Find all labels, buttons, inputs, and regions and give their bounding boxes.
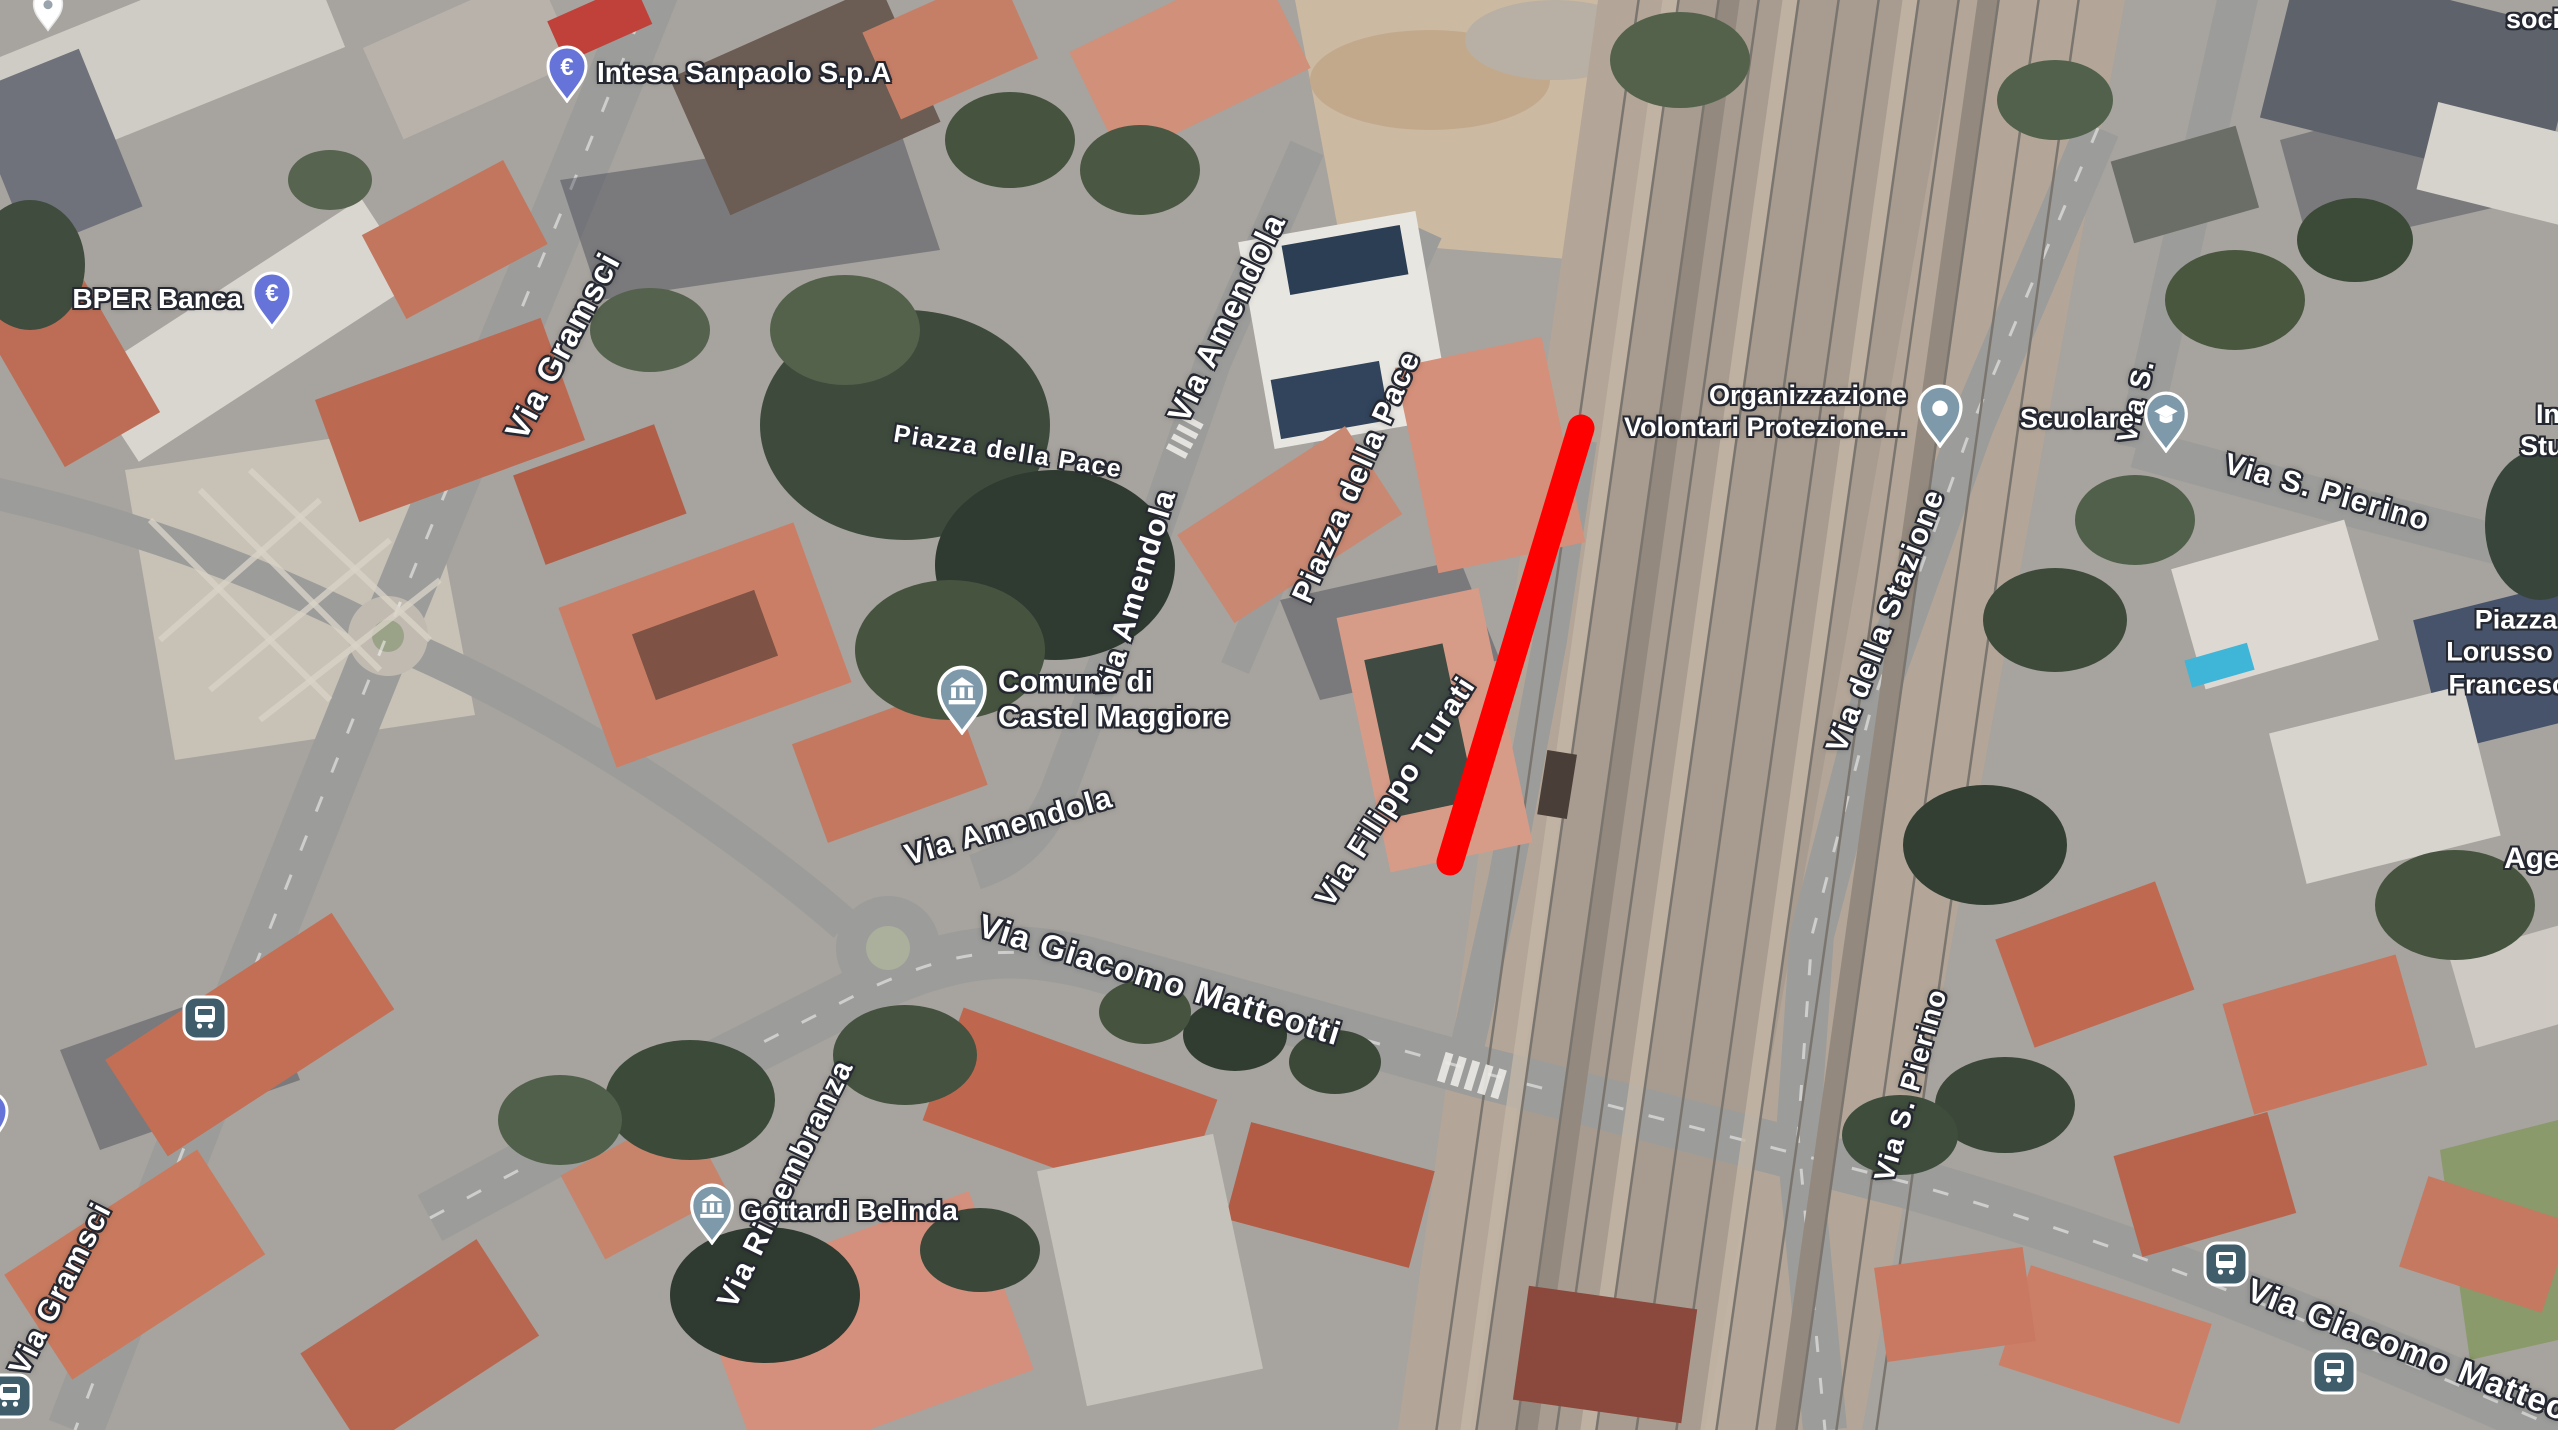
dot-icon <box>43 0 52 9</box>
poi-label-piazza-lorusso[interactable]: Piazza Lorusso Pi Francesco <box>2446 603 2558 700</box>
poi-label-line: Francesco <box>2446 668 2558 700</box>
dot-icon <box>1932 401 1947 416</box>
white-pin-icon <box>31 0 65 32</box>
bus-icon <box>182 995 228 1041</box>
route-highlight-line <box>1450 428 1581 862</box>
euro-bank-pin-icon: € <box>0 1090 10 1148</box>
poi-label-line: Castel Maggiore <box>998 700 1230 735</box>
poi-label-agen-clipped[interactable]: Agen <box>2504 842 2558 876</box>
bus-icon <box>2311 1349 2357 1395</box>
poi-label-line: Comune di <box>998 665 1230 700</box>
poi-label-line: Lorusso Pi <box>2446 636 2558 668</box>
poi-label-line: Stud <box>2520 430 2558 462</box>
bus-icon <box>0 1373 33 1419</box>
poi-label-gottardi-belinda: Gottardi Belinda <box>740 1195 958 1227</box>
poi-label-socia-clipped[interactable]: socia <box>2506 4 2558 35</box>
school-pin-icon <box>2142 391 2190 453</box>
poi-label-line: Piazza <box>2446 603 2558 635</box>
euro-bank-pin-icon: € <box>250 271 294 329</box>
satellite-map-canvas[interactable]: Via Gramsci Piazza della Pace Via Amendo… <box>0 0 2558 1430</box>
poi-label-line: Volontari Protezione... <box>1624 412 1907 444</box>
civic-building-pin-icon <box>935 665 989 735</box>
poi-label-scuolare: Scuolare <box>2020 404 2134 435</box>
bus-icon <box>2203 1241 2249 1287</box>
route-highlight-annotation <box>0 0 2558 1430</box>
poi-label-intesa-sanpaolo: Intesa Sanpaolo S.p.A <box>597 57 891 89</box>
poi-label-line: In <box>2520 398 2558 430</box>
dot-pin-icon <box>1915 384 1965 448</box>
poi-label-bper-banca: BPER Banca <box>72 283 242 315</box>
civic-building-pin-icon <box>688 1183 736 1245</box>
euro-icon: € <box>265 280 278 307</box>
poi-label-line: Organizzazione <box>1624 380 1907 412</box>
poi-label-in-stud-clipped[interactable]: In Stud <box>2520 398 2558 463</box>
euro-icon: € <box>560 54 573 81</box>
euro-bank-pin-icon: € <box>545 45 589 103</box>
poi-label-comune-castel-maggiore: Comune di Castel Maggiore <box>998 665 1230 736</box>
poi-label-organizzazione-volontari: Organizzazione Volontari Protezione... <box>1624 380 1907 444</box>
